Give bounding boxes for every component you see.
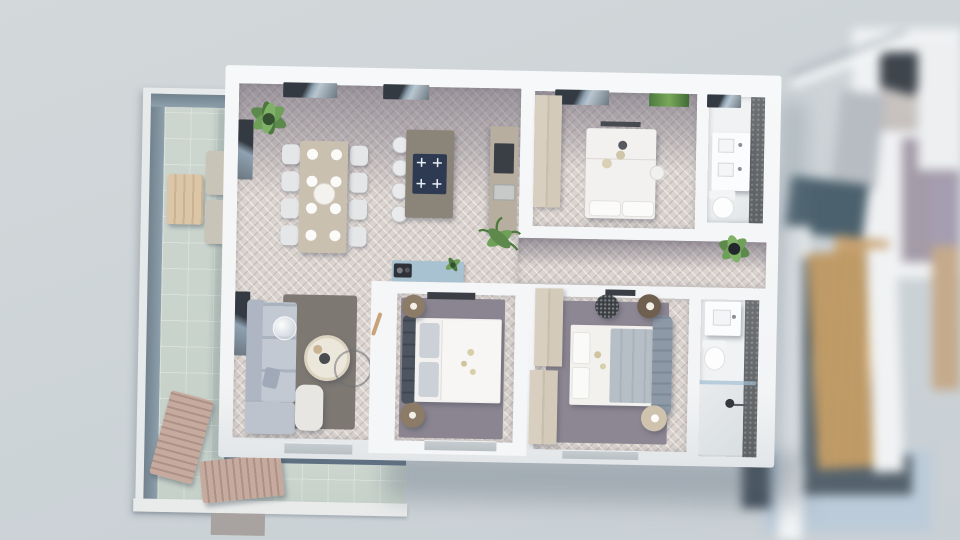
bed3-pillow [572, 332, 591, 364]
bed2-decor [467, 349, 474, 356]
dining-chair [280, 225, 298, 245]
faucet [732, 315, 736, 319]
dinner-plate [305, 230, 316, 241]
bedroom1-wardrobe [533, 95, 562, 207]
nightstand-flower [410, 303, 417, 310]
terrace-glass-top [151, 94, 233, 109]
nightstand-flower [646, 302, 654, 310]
bed3-decor [594, 351, 601, 358]
dining-chair [350, 145, 368, 165]
wall-oven [494, 143, 515, 173]
dining-chair [281, 171, 299, 191]
shower-floor [698, 384, 743, 455]
center-platter [313, 183, 335, 205]
bed1-cushion [616, 151, 625, 160]
bed2-duvet [440, 320, 501, 401]
sun-lounger-2 [199, 453, 285, 503]
dining-chair [349, 172, 367, 192]
nightstand-flower [651, 414, 659, 422]
bathroom1-window [707, 94, 741, 108]
burner [433, 158, 442, 167]
bedroom3-bed [569, 325, 655, 407]
nightstand-flower [409, 412, 416, 419]
bathroom1-sink [718, 163, 734, 177]
bathroom2-vanity [705, 301, 742, 336]
bed2-pillow [419, 323, 440, 358]
bedroom3-wardrobe-2 [528, 370, 557, 445]
bedroom1-wall-art-green [649, 93, 689, 107]
dinner-plate [307, 149, 318, 160]
record [397, 267, 403, 273]
record [405, 268, 410, 273]
burner [432, 179, 441, 188]
bed3-pillow [571, 367, 590, 399]
living-window-2 [383, 84, 429, 100]
bedroom3-terrace-door [562, 450, 638, 460]
armchair [295, 384, 324, 431]
dinner-plate [329, 230, 340, 241]
dining-chair [282, 144, 300, 164]
bathroom2-sink [713, 309, 731, 325]
dinner-plate [306, 203, 317, 214]
dinner-plate [330, 203, 341, 214]
bedroom1-wall-frames [601, 121, 641, 127]
apartment-plan [0, 0, 960, 540]
record-player [394, 263, 412, 277]
sofa-chaise [245, 402, 296, 435]
bed1-pillow [589, 200, 621, 217]
corner-plants [244, 91, 293, 144]
bed2-decor [470, 369, 476, 375]
bed1-pillow [622, 201, 654, 218]
walkway-stub [211, 513, 265, 536]
bedroom3-headboard [651, 315, 673, 415]
burner [417, 158, 426, 167]
dining-table [298, 141, 348, 254]
bed3-blanket [609, 329, 652, 404]
burner [416, 179, 425, 188]
coffee-table-bowl [313, 345, 322, 354]
faucet [738, 143, 742, 147]
bathroom1-vanity [711, 132, 750, 191]
dining-chair [348, 226, 366, 246]
dining-chair [281, 198, 299, 218]
bedroom2-bed [414, 318, 502, 404]
hallway-plant [714, 228, 755, 269]
cooktop [412, 154, 447, 195]
palm-plant [476, 210, 523, 267]
kitchen-sink [493, 184, 515, 200]
coffee-table-tray [319, 353, 330, 364]
sideboard-plant [442, 251, 464, 277]
bed2-decor [461, 361, 467, 367]
outdoor-table [167, 174, 204, 225]
faucet [738, 167, 742, 171]
bedroom2-terrace-door [424, 440, 496, 451]
shower-arm [733, 404, 747, 406]
bathroom1-tile-wall [749, 97, 765, 223]
bedroom2-tv-console [427, 292, 475, 300]
dinner-plate [331, 149, 342, 160]
bedroom3-wardrobe-1 [534, 288, 563, 367]
bed2-pillow [418, 362, 439, 397]
kitchen-island [405, 130, 455, 219]
bed3-decor [600, 363, 606, 369]
scene [0, 0, 960, 540]
bedroom1-window [555, 89, 609, 105]
bathroom1-sink [718, 139, 734, 153]
dining-chair [349, 199, 367, 219]
living-terrace-door [284, 442, 352, 454]
bed1-cushion [602, 158, 612, 168]
